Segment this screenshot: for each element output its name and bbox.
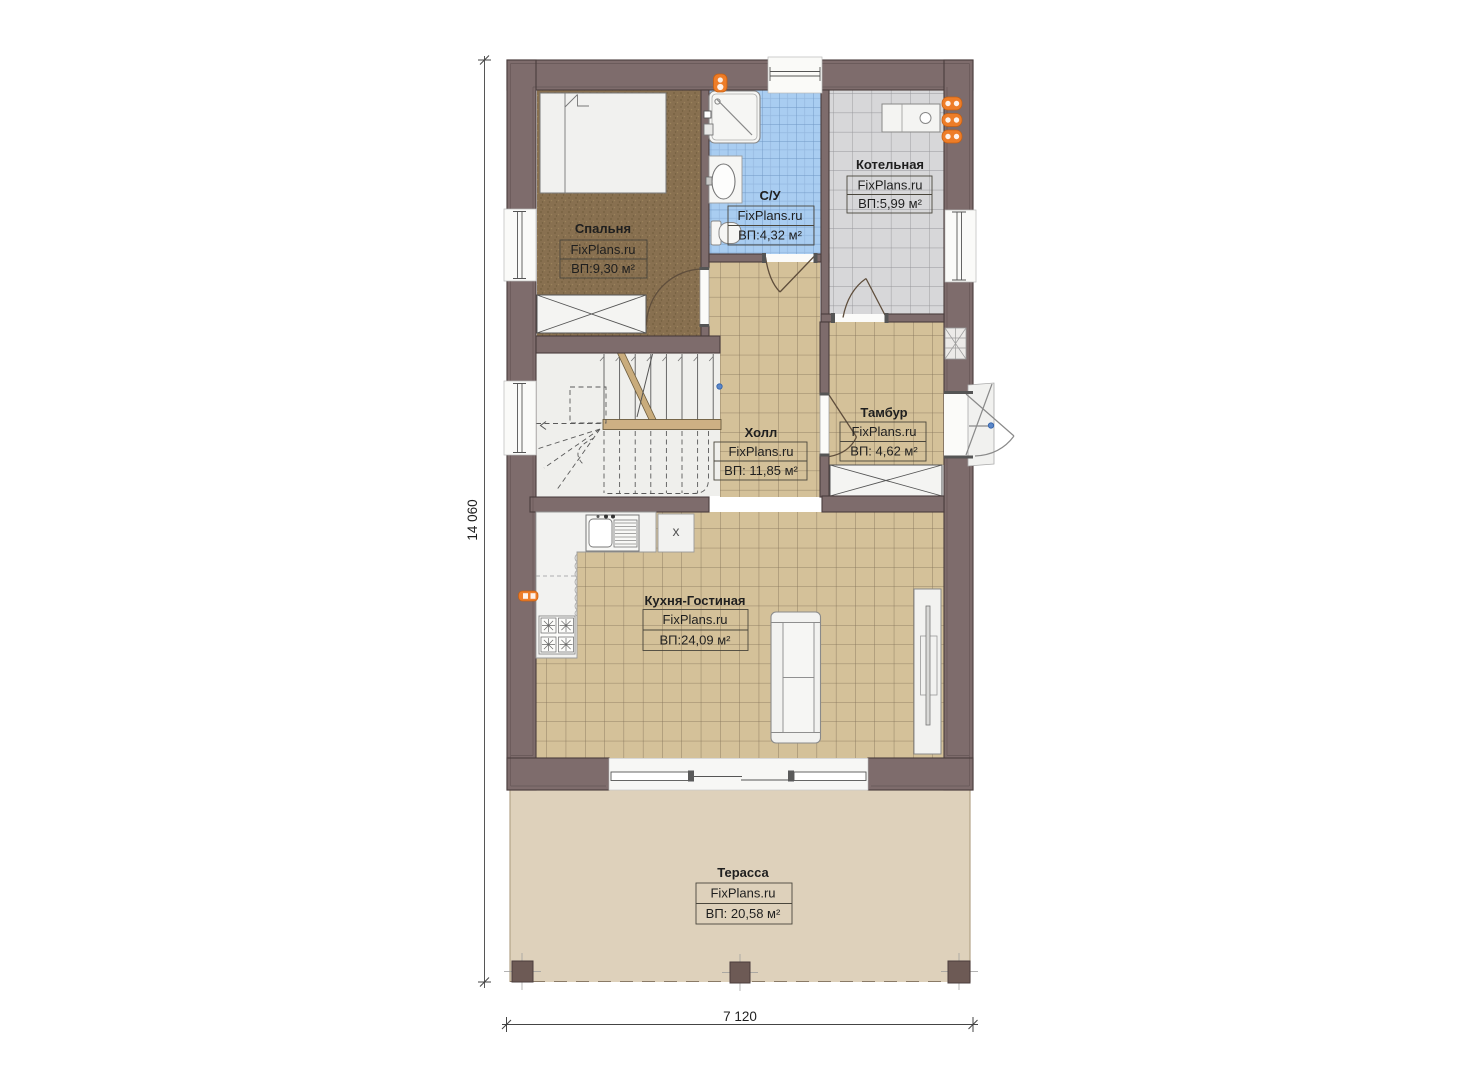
svg-text:FixPlans.ru: FixPlans.ru	[857, 178, 922, 193]
svg-text:ВП:4,32 м²: ВП:4,32 м²	[738, 228, 802, 243]
svg-text:ВП:5,99 м²: ВП:5,99 м²	[858, 196, 922, 211]
svg-text:ВП: 11,85 м²: ВП: 11,85 м²	[724, 463, 798, 478]
svg-text:Терасса: Терасса	[717, 865, 769, 880]
svg-text:С/У: С/У	[759, 188, 781, 203]
svg-text:Спальня: Спальня	[575, 221, 631, 236]
svg-text:Холл: Холл	[745, 425, 778, 440]
svg-text:ВП: 20,58 м²: ВП: 20,58 м²	[706, 906, 781, 921]
svg-text:FixPlans.ru: FixPlans.ru	[728, 444, 793, 459]
svg-text:FixPlans.ru: FixPlans.ru	[710, 886, 775, 901]
svg-text:ВП:24,09 м²: ВП:24,09 м²	[659, 633, 731, 648]
svg-text:ВП:9,30 м²: ВП:9,30 м²	[571, 261, 635, 276]
svg-text:FixPlans.ru: FixPlans.ru	[851, 424, 916, 439]
svg-text:FixPlans.ru: FixPlans.ru	[662, 612, 727, 627]
svg-text:Кухня-Гостиная: Кухня-Гостиная	[644, 593, 745, 608]
svg-text:FixPlans.ru: FixPlans.ru	[570, 242, 635, 257]
svg-text:14 060: 14 060	[465, 499, 480, 540]
svg-text:Котельная: Котельная	[856, 157, 924, 172]
svg-text:7 120: 7 120	[723, 1009, 757, 1024]
svg-text:Тамбур: Тамбур	[860, 405, 907, 420]
svg-text:FixPlans.ru: FixPlans.ru	[737, 208, 802, 223]
svg-text:x: x	[673, 523, 680, 539]
svg-text:ВП: 4,62 м²: ВП: 4,62 м²	[850, 444, 918, 459]
